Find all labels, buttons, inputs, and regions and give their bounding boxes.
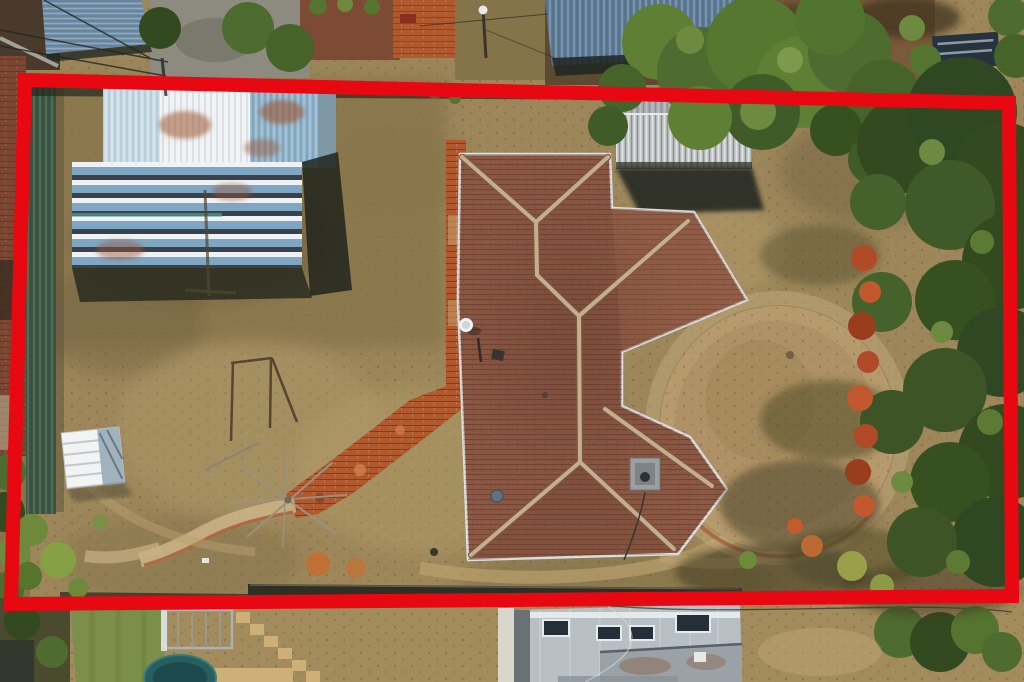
north-tree-2 <box>266 24 314 72</box>
aerial-photo <box>0 0 1024 682</box>
neighbour-modern-house <box>514 604 742 682</box>
pole-dish <box>479 6 488 15</box>
south-neighbour-strip <box>0 598 1024 682</box>
concrete-path <box>498 608 514 682</box>
roof-vent-small <box>542 392 548 398</box>
scrub-ground <box>455 0 550 80</box>
white-debris <box>202 558 209 563</box>
garden-bench <box>400 14 416 23</box>
paved-patio <box>205 668 293 682</box>
corrugated-shed <box>72 86 352 302</box>
conifer-tree <box>139 7 181 49</box>
shed-shadow-south <box>72 268 312 302</box>
green-colorbond-fence <box>26 78 64 514</box>
roof-vent-blue <box>491 490 503 502</box>
tree-stump <box>430 548 438 556</box>
shed-shadow <box>616 168 764 214</box>
aerial-photo-canvas <box>0 0 1024 682</box>
